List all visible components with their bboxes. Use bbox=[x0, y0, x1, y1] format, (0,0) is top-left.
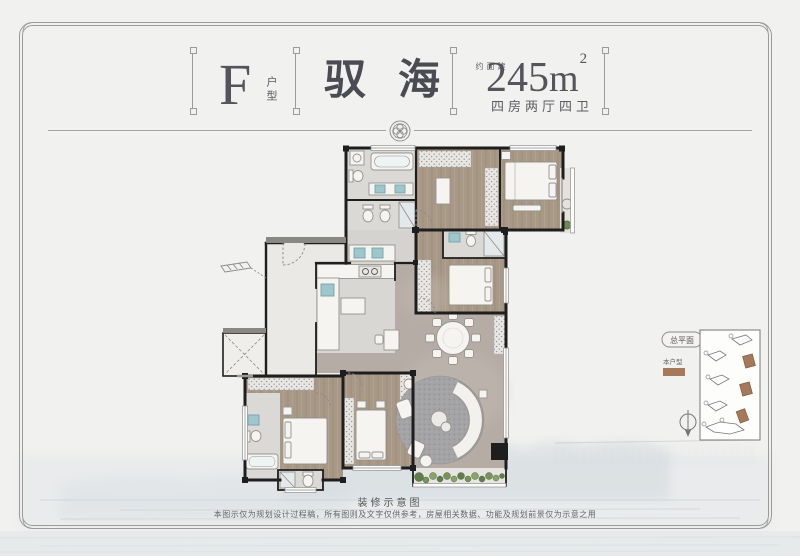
window bbox=[243, 406, 248, 460]
closet-island bbox=[436, 178, 450, 204]
bed2-icon bbox=[449, 265, 493, 305]
toilet-icon bbox=[466, 231, 476, 247]
window bbox=[504, 348, 509, 438]
nightstand bbox=[283, 407, 292, 415]
area-value: 245m2 bbox=[486, 52, 587, 99]
unit-type-label: 户型 bbox=[263, 76, 279, 104]
siteplan: 总平面 本户型 bbox=[648, 326, 773, 451]
sink-icon bbox=[375, 185, 385, 193]
disclaimer-text: 本图示仅为规划设计过程稿，所有图则及文字仅供参考，房屋相关数据、功能及规划前景仅… bbox=[160, 509, 650, 520]
bed3-icon bbox=[283, 418, 327, 464]
layout-text: 四房两厅四卫 bbox=[476, 96, 608, 115]
sink-icon bbox=[449, 233, 460, 242]
sink-icon bbox=[248, 415, 259, 425]
area-unit: m bbox=[549, 58, 579, 100]
balcony-rail bbox=[413, 484, 506, 488]
washer-icon bbox=[350, 151, 364, 165]
window bbox=[510, 146, 556, 151]
dining-table-icon bbox=[426, 312, 481, 365]
kitchen-sink bbox=[321, 284, 334, 296]
ac-ledge-icon bbox=[221, 262, 266, 278]
window bbox=[353, 466, 401, 471]
floor-plan bbox=[213, 138, 608, 498]
window bbox=[371, 146, 415, 151]
toilet-icon bbox=[349, 170, 363, 182]
side-table bbox=[479, 390, 487, 398]
nightstand bbox=[357, 401, 366, 408]
north-arrow-icon bbox=[680, 410, 696, 437]
floorplan-poster: F 户型 驭海 建面约 245m2 四房两厅四卫 bbox=[0, 0, 800, 556]
bathtub-icon bbox=[371, 153, 413, 170]
desk-chair bbox=[375, 335, 383, 344]
siteplan-legend-label: 本户型 bbox=[663, 357, 683, 366]
nightstand bbox=[502, 152, 511, 160]
nightstand bbox=[376, 401, 385, 408]
header-divider-4 bbox=[604, 54, 605, 108]
header-divider-2 bbox=[295, 54, 296, 108]
siteplan-legend-swatch bbox=[663, 368, 685, 376]
desk bbox=[384, 330, 399, 350]
project-title: 驭海 bbox=[324, 56, 472, 106]
siteplan-title: 总平面 bbox=[670, 335, 694, 345]
window bbox=[504, 268, 509, 303]
bathtub-icon bbox=[246, 454, 278, 469]
toilet-icon bbox=[246, 431, 261, 443]
header-divider-1 bbox=[192, 54, 193, 108]
window bbox=[285, 488, 316, 493]
unit-letter: F bbox=[219, 56, 251, 114]
header-divider-3 bbox=[452, 54, 453, 108]
bed4-icon bbox=[356, 410, 386, 460]
balcony-rail bbox=[571, 168, 575, 233]
shower-icon bbox=[484, 231, 504, 256]
area-exponent: 2 bbox=[580, 51, 588, 67]
plan-caption: 装修示意图 bbox=[290, 494, 490, 509]
siteplan-map bbox=[700, 330, 760, 440]
sink-icon bbox=[395, 185, 405, 193]
